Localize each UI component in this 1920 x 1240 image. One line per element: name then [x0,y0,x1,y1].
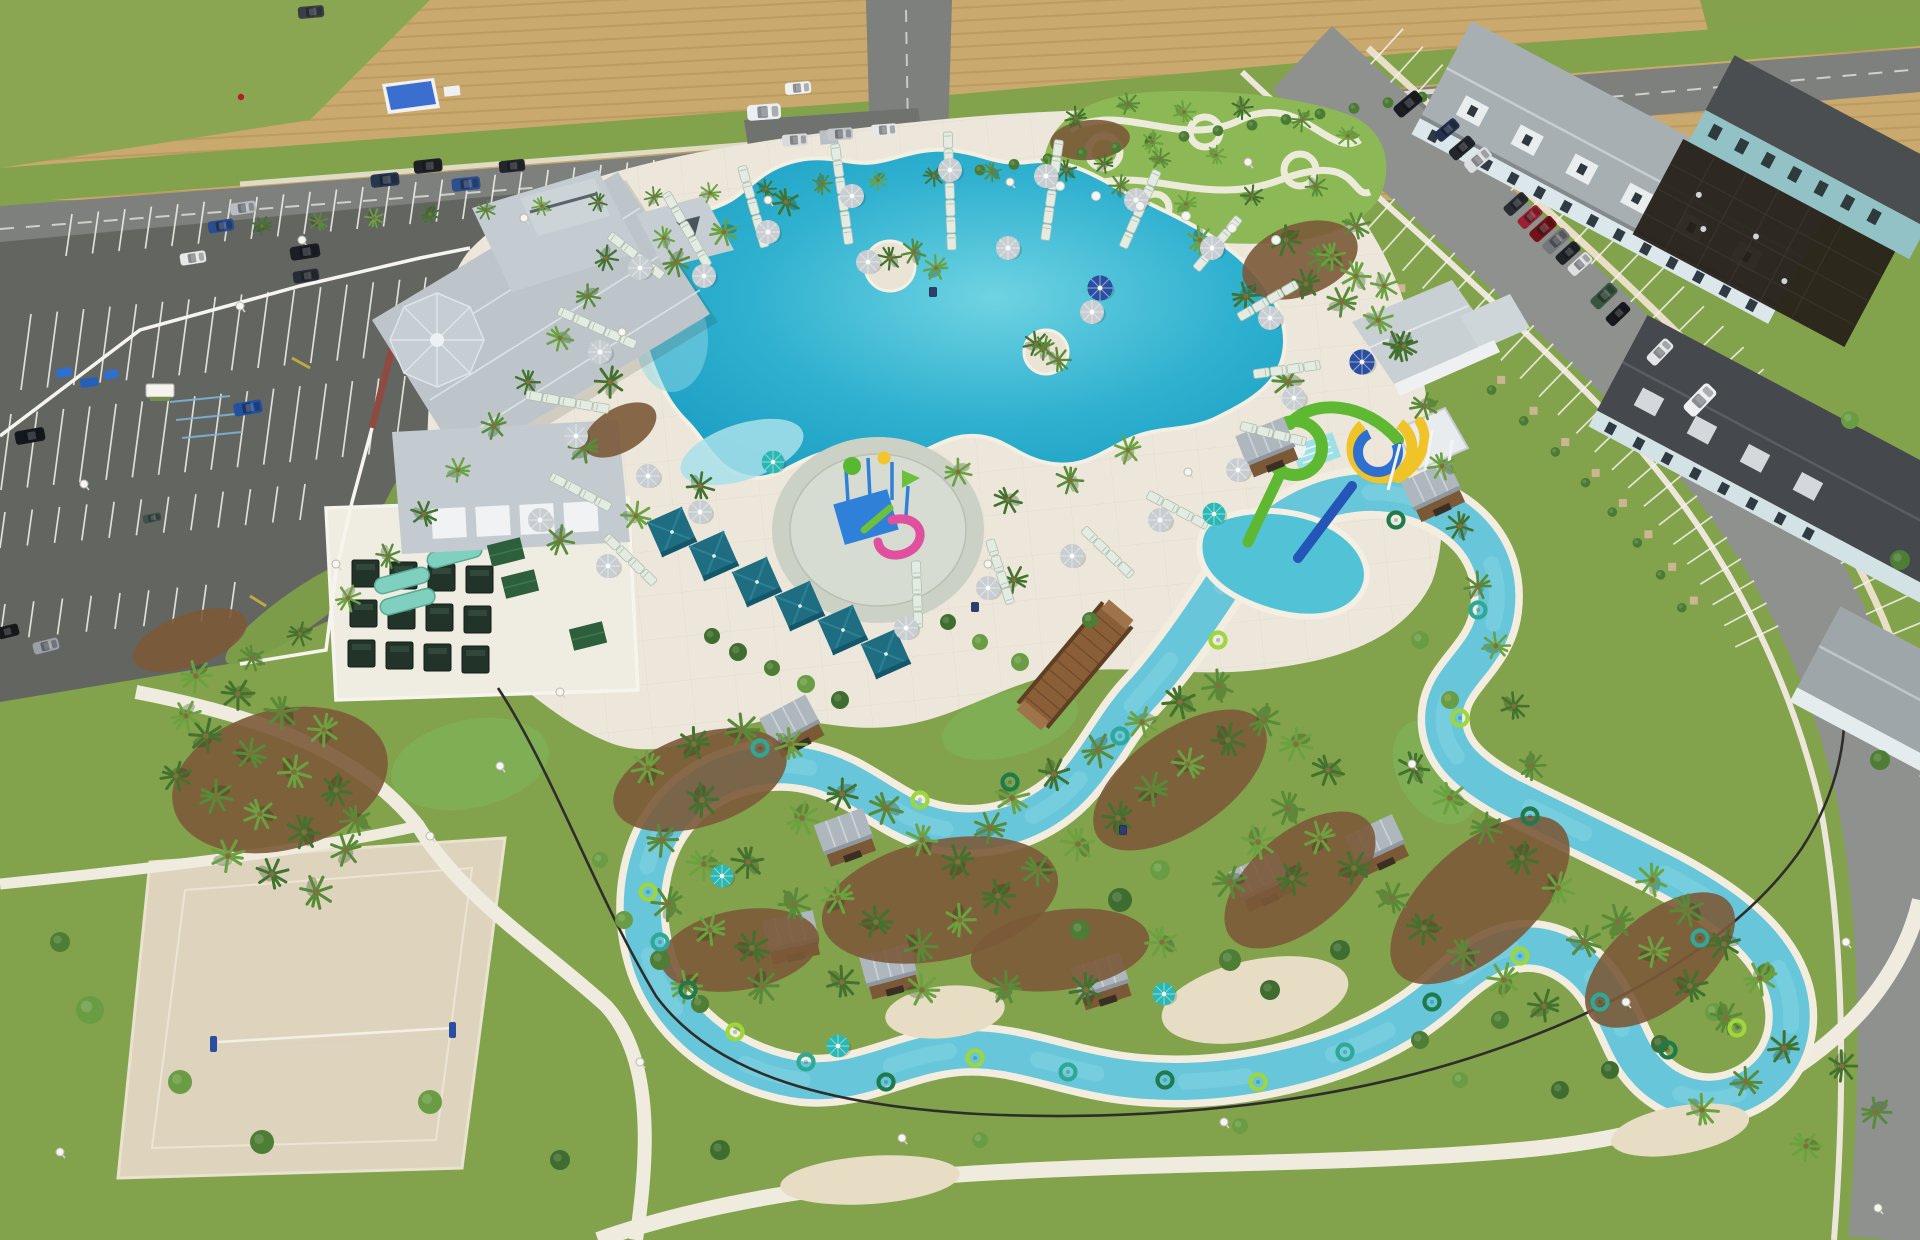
lounge-chair [913,595,923,611]
lounge-chair [912,578,922,594]
parked-car [871,123,898,137]
wall-column [1561,438,1569,446]
sun-sprayer [878,452,891,465]
work-truck [444,85,461,97]
bush [831,691,849,709]
bush [1411,631,1429,649]
equipment-vent [356,564,375,570]
bush [1890,550,1910,570]
hedge-bush [1349,103,1360,114]
bush [1219,949,1241,971]
lounge-chair [1041,224,1052,241]
entry-monument-sign [146,384,174,401]
lounge-chair [1045,190,1056,207]
wall-column [1644,530,1652,538]
trash-bin [930,288,937,297]
stop-sign [238,94,244,100]
lounge-chair [943,132,953,148]
dining-table [1136,202,1145,211]
dining-table [1182,212,1191,221]
equipment-vent [430,608,449,614]
equipment-vent [470,570,489,576]
bush [972,1132,988,1148]
bush [972,634,988,650]
bush [764,660,780,676]
wall-column [1592,469,1600,477]
net-post [210,1036,217,1052]
bush [710,1140,730,1160]
bush [729,643,747,661]
lounge-chair [842,228,853,245]
bush [592,852,608,868]
wall-hedge [1487,385,1497,395]
bush [797,675,815,693]
bush [1070,920,1090,940]
hedge-bush [1077,148,1088,159]
lounge-chair [945,183,955,199]
lounge-chair [946,200,956,216]
lounge-chair [830,143,841,160]
bush [940,614,956,630]
bush [1551,1081,1569,1099]
lounge-chair [1270,365,1287,376]
bush [650,950,670,970]
wall-column [1668,563,1676,571]
bush [1870,750,1890,770]
resort-aerial-photo: Aerial drone photograph of a resort amen… [0,0,1920,1240]
bush [550,1150,570,1170]
bush [1232,1118,1248,1134]
bush [1452,1072,1468,1088]
bush [168,1070,192,1094]
equipment-vent [390,646,409,652]
lounge-chair [840,211,851,228]
lounge-chair [833,160,844,177]
wall-column [1690,597,1698,605]
bush [1441,691,1459,709]
wall-column [1530,407,1538,415]
bush [1330,940,1350,960]
hedge-bush [1213,125,1224,136]
dining-table [1228,224,1237,233]
bush [1260,980,1280,1000]
bush [50,932,70,952]
wall-column [1497,376,1505,384]
bush [1108,888,1132,912]
wall-hedge [1551,447,1561,457]
lounge-chair [946,217,956,233]
hedge-bush [1111,142,1122,153]
dining-table [1272,236,1281,245]
aerial-photo-stage: Aerial drone photograph of a resort amen… [0,0,1920,1240]
parked-car [782,133,809,147]
green-sculpture [843,457,861,475]
hedge-bush [1179,131,1190,142]
wall-hedge [1633,538,1643,548]
bush [1411,1031,1429,1049]
parked-car [747,103,782,121]
bush [1082,612,1098,628]
bush [1491,1011,1509,1029]
hedge-bush [975,165,986,176]
equipment-vent [432,568,451,574]
wall-hedge [1581,478,1591,488]
equipment-vent [354,604,373,610]
bush [1150,860,1170,880]
lounge-chair [1253,368,1270,379]
bush [704,628,720,644]
wall-hedge [1677,603,1687,613]
wall-column [1619,499,1627,507]
net-post [449,1022,456,1038]
lounge-chair [1052,139,1063,156]
bush [418,1090,442,1114]
equipment-vent [428,648,447,654]
bush [250,1130,274,1154]
wall-hedge [1656,570,1666,580]
bush [615,911,633,929]
wall-hedge [1607,507,1617,517]
lounge-chair [1043,207,1054,224]
wall-hedge [1519,416,1529,426]
parked-car [827,127,854,141]
lounge-chair [1287,363,1304,374]
lounge-chair [947,234,957,250]
hedge-bush [1315,109,1326,120]
hedge-bush [1383,97,1394,108]
bush [1841,411,1859,429]
trash-bin [1120,826,1127,835]
parked-car [785,81,812,95]
clubhouse-tower [390,293,484,387]
bush [1601,1061,1619,1079]
bush [76,996,104,1024]
hedge-bush [1009,159,1020,170]
dining-table [1056,182,1065,191]
parked-car [298,5,325,19]
dining-table [1092,192,1101,201]
lounge-chair [1303,360,1320,371]
equipment-vent [466,650,485,656]
equipment-vent [468,610,487,616]
bush [1011,653,1029,671]
hedge-bush [1281,114,1292,125]
trash-bin [972,603,979,612]
lounge-chair [911,561,921,577]
equipment-vent [352,644,371,650]
hedge-bush [1247,120,1258,131]
